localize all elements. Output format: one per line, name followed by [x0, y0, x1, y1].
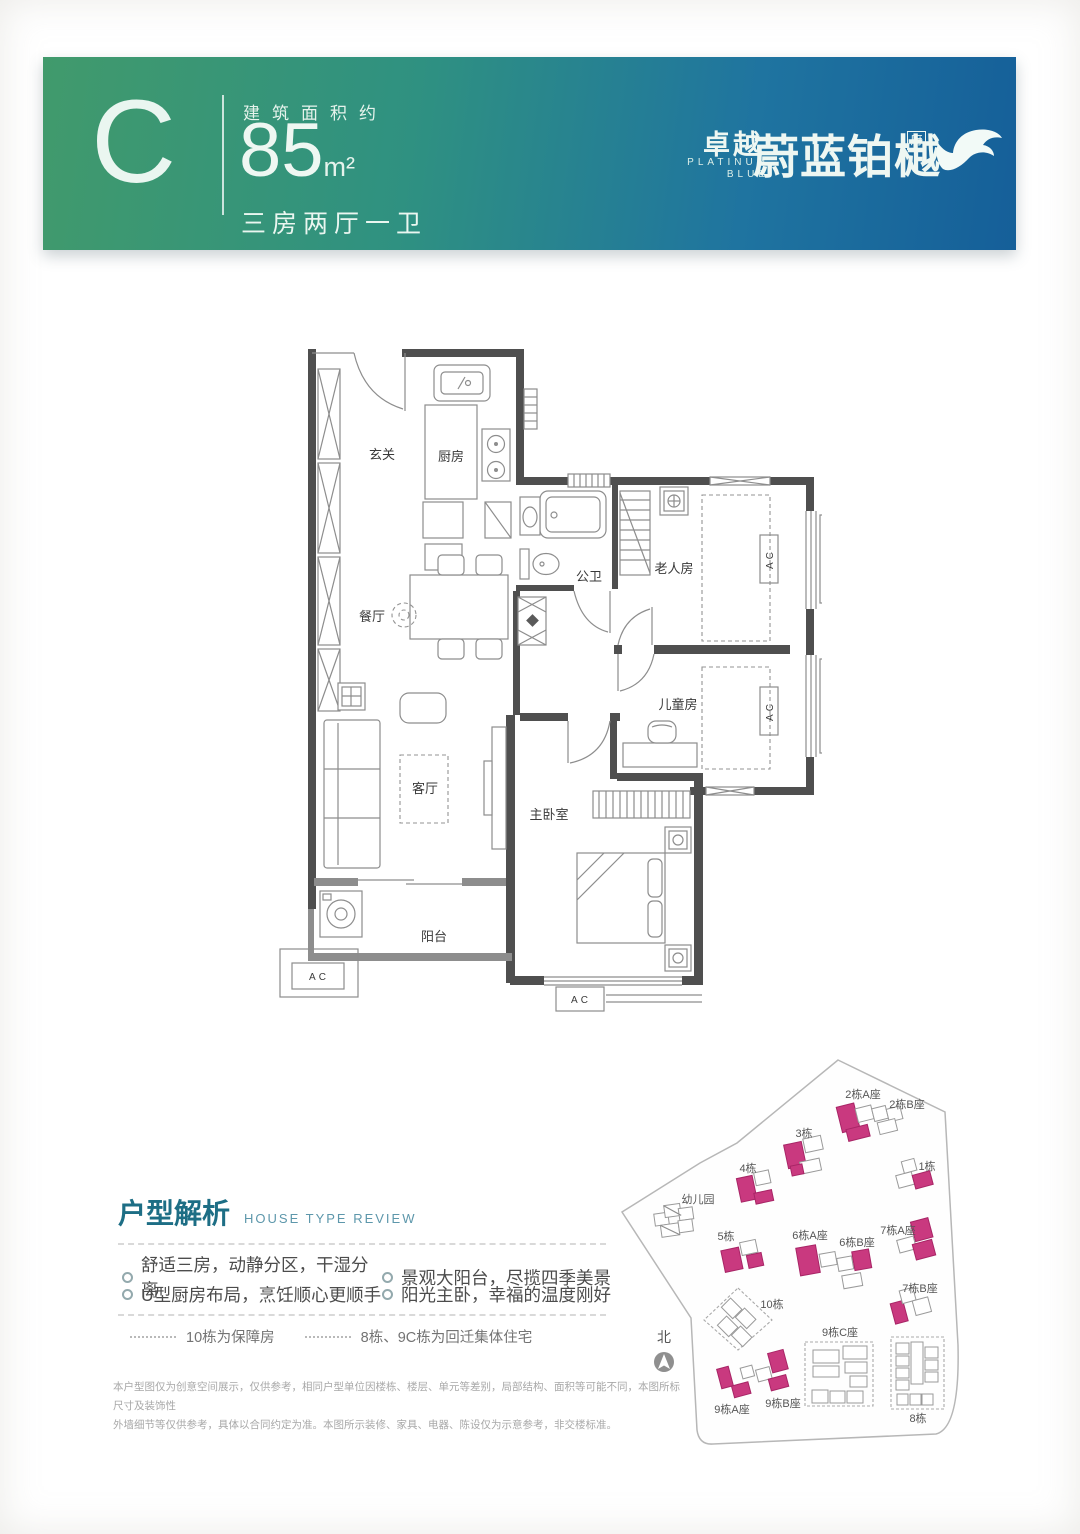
- ac-label-master: AC: [571, 995, 591, 1006]
- room-label-entry: 玄关: [369, 447, 395, 462]
- room-label-master: 主卧室: [529, 807, 568, 822]
- legend-dash-icon: [130, 1336, 176, 1338]
- window-right-lower: [804, 655, 822, 757]
- entry-closet-strip: [318, 369, 340, 711]
- site-plan-map: 幼儿园 2栋A座 2栋B座 3栋 4栋 1栋 5栋 6栋A座 6栋B座: [600, 1050, 1070, 1470]
- layout-description: 三房两厅一卫: [241, 204, 427, 240]
- master-bedroom-furniture: [577, 791, 691, 971]
- project-name-suffix-seal: 府: [907, 131, 926, 150]
- bullet-dot-icon: [382, 1272, 393, 1283]
- room-label-elder-room: 老人房: [654, 561, 693, 576]
- header-banner: C 建筑面积约 85m² 三房两厅一卫 卓越 PLATINUM BLUE 蔚蓝铂…: [43, 57, 1016, 250]
- floor-plan-diagram: 玄关 厨房 餐厅 公卫 老人房 儿童房 客厅 主卧室 阳台 AC AC AC A…: [262, 335, 822, 1015]
- window-right-upper: [804, 511, 822, 609]
- elder-room-furniture: [620, 487, 778, 641]
- area-value: 85: [239, 108, 324, 193]
- living-room-furniture: [324, 683, 506, 868]
- building-label-2a: 2栋A座: [845, 1087, 880, 1101]
- kids-room-furniture: [623, 667, 778, 769]
- building-label-7b: 7栋B座: [902, 1281, 937, 1295]
- legend-dash-icon: [305, 1336, 351, 1338]
- room-label-kids-room: 儿童房: [658, 697, 697, 712]
- building-label-10: 10栋: [760, 1297, 783, 1311]
- bathroom-fixtures: [520, 491, 606, 579]
- divider-dashed-top: [118, 1243, 606, 1245]
- whale-tail-logo-icon: [929, 123, 1005, 179]
- site-legend: 10栋为保障房 8栋、9C栋为回迁集体住宅: [130, 1326, 532, 1347]
- legend-item: 8栋、9C栋为回迁集体住宅: [361, 1326, 533, 1347]
- corridor-cabinet: [518, 597, 546, 645]
- building-label-6a: 6栋A座: [792, 1228, 827, 1242]
- ac-label-right-lower: AC: [765, 701, 776, 721]
- room-label-bath: 公卫: [576, 569, 602, 584]
- divider-dashed-bottom: [118, 1314, 606, 1316]
- building-label-8: 8栋: [909, 1411, 926, 1425]
- room-label-balcony: 阳台: [421, 929, 447, 944]
- balcony-fixtures: [320, 891, 362, 937]
- bullet-dot-icon: [122, 1272, 133, 1283]
- window-sill-x-bottom: [706, 787, 754, 795]
- building-label-1: 1栋: [918, 1159, 935, 1173]
- building-label-2b: 2栋B座: [889, 1097, 924, 1111]
- bullet-row-2: U型厨房布局，烹饪顺心更顺手 阳光主卧，幸福的温度刚好: [122, 1282, 682, 1307]
- building-label-3: 3栋: [795, 1126, 812, 1140]
- building-label-6b: 6栋B座: [839, 1235, 874, 1249]
- building-label-kindergarten: 幼儿园: [682, 1193, 715, 1206]
- building-label-9b: 9栋B座: [765, 1396, 800, 1410]
- room-label-living: 客厅: [412, 781, 438, 796]
- bullet-dot-icon: [382, 1289, 393, 1300]
- room-label-kitchen: 厨房: [438, 449, 464, 464]
- bullet-item: U型厨房布局，烹饪顺心更顺手: [122, 1282, 382, 1307]
- legend-item: 10栋为保障房: [186, 1326, 275, 1347]
- bullet-dot-icon: [122, 1289, 133, 1300]
- ac-label-balcony: AC: [309, 972, 329, 983]
- building-label-9c: 9栋C座: [822, 1325, 858, 1339]
- bullet-item: 阳光主卧，幸福的温度刚好: [382, 1282, 611, 1307]
- north-arrow: 北: [654, 1329, 674, 1372]
- window-sill-x-top: [710, 477, 770, 485]
- review-title-en: HOUSE TYPE REVIEW: [244, 1211, 416, 1226]
- dining-furniture: [392, 555, 508, 659]
- unit-type-letter: C: [91, 83, 176, 201]
- area-unit: m²: [324, 152, 355, 182]
- banner-divider: [222, 95, 224, 215]
- building-label-5: 5栋: [717, 1229, 734, 1243]
- svg-text:北: 北: [657, 1329, 671, 1345]
- building-label-7a: 7栋A座: [880, 1223, 915, 1237]
- review-title-cn: 户型解析: [118, 1198, 230, 1229]
- building-label-9a: 9栋A座: [714, 1402, 749, 1416]
- room-label-dining: 餐厅: [359, 609, 385, 624]
- review-section-title: 户型解析HOUSE TYPE REVIEW: [118, 1192, 416, 1232]
- ac-label-right-upper: AC: [765, 549, 776, 569]
- door-arcs: [354, 353, 654, 763]
- building-label-4: 4栋: [739, 1161, 756, 1175]
- area-value-row: 85m²: [239, 113, 355, 189]
